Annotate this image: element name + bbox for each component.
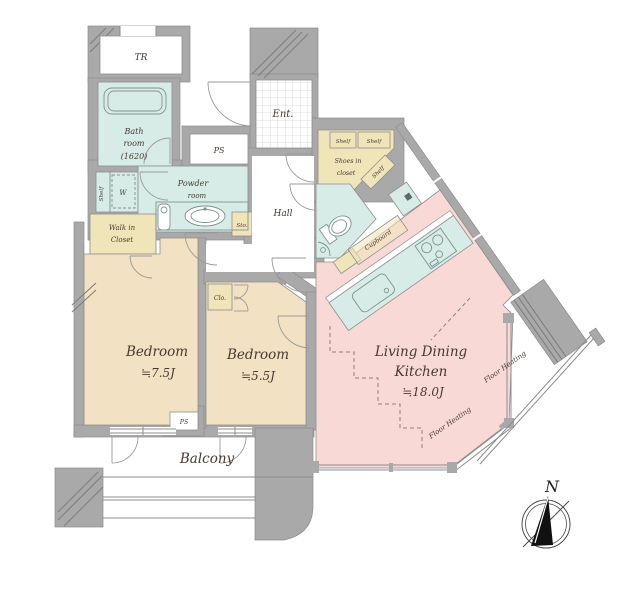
pillar-nub <box>589 328 605 346</box>
label-entrance: Ent. <box>272 109 294 120</box>
wall-entry-pillar <box>250 28 318 78</box>
label-ldk-2: Kitchen <box>394 364 448 380</box>
label-ps-upper: PS <box>213 146 225 155</box>
label-bath-1: Bath <box>123 127 143 136</box>
label-shoes-2: closet <box>337 170 356 177</box>
floor-plan-image: TR Bath room (1620) PS Powder room Shelf… <box>0 0 640 595</box>
label-shoes-shelf-right: Shelf <box>367 139 383 145</box>
bedroom1-balcony-window <box>110 427 176 435</box>
label-ps-lower: PS <box>179 419 188 426</box>
label-ldk-size: ≒18.0J <box>402 385 445 399</box>
label-closet-small: Clo. <box>214 295 226 302</box>
label-bedroom1-size: ≒7.5J <box>141 366 176 380</box>
balcony-door-bedroom1 <box>112 437 138 463</box>
neighbor-block-left <box>55 468 103 527</box>
label-tr: TR <box>135 53 148 63</box>
label-wic-1: Walk in <box>109 224 136 232</box>
room-bedroom1 <box>84 238 198 425</box>
wall-left-outer <box>74 222 84 437</box>
label-balcony: Balcony <box>179 451 235 467</box>
label-hall: Hall <box>273 209 293 219</box>
front-door <box>208 82 252 126</box>
label-north: N <box>544 477 560 496</box>
label-bedroom2-size: ≒5.5J <box>241 369 276 383</box>
label-powder-2: room <box>188 192 207 200</box>
label-washer: W <box>119 189 127 197</box>
room-walk-in-closet <box>90 214 156 254</box>
bedroom2-balcony-window <box>218 427 252 435</box>
label-ldk-1: Living Dining <box>374 344 468 360</box>
compass-icon: N <box>522 477 570 548</box>
label-powder-1: Powder <box>177 179 210 188</box>
tr-door-gap <box>120 26 156 36</box>
label-shoes-1: Shoes in <box>335 158 362 165</box>
label-shelf-vertical: Shelf <box>99 186 105 202</box>
label-shoes-shelf-left: Shelf <box>336 139 352 145</box>
label-bedroom2-name: Bedroom <box>226 347 289 363</box>
label-storage: Sto. <box>236 223 247 229</box>
label-bedroom1-name: Bedroom <box>125 344 188 360</box>
floor-plan-page: TR Bath room (1620) PS Powder room Shelf… <box>0 0 640 595</box>
label-bath-2: room <box>123 139 144 148</box>
label-bath-3: (1620) <box>121 152 148 161</box>
neighbor-block-center <box>255 428 313 540</box>
label-wic-2: Closet <box>111 236 134 244</box>
